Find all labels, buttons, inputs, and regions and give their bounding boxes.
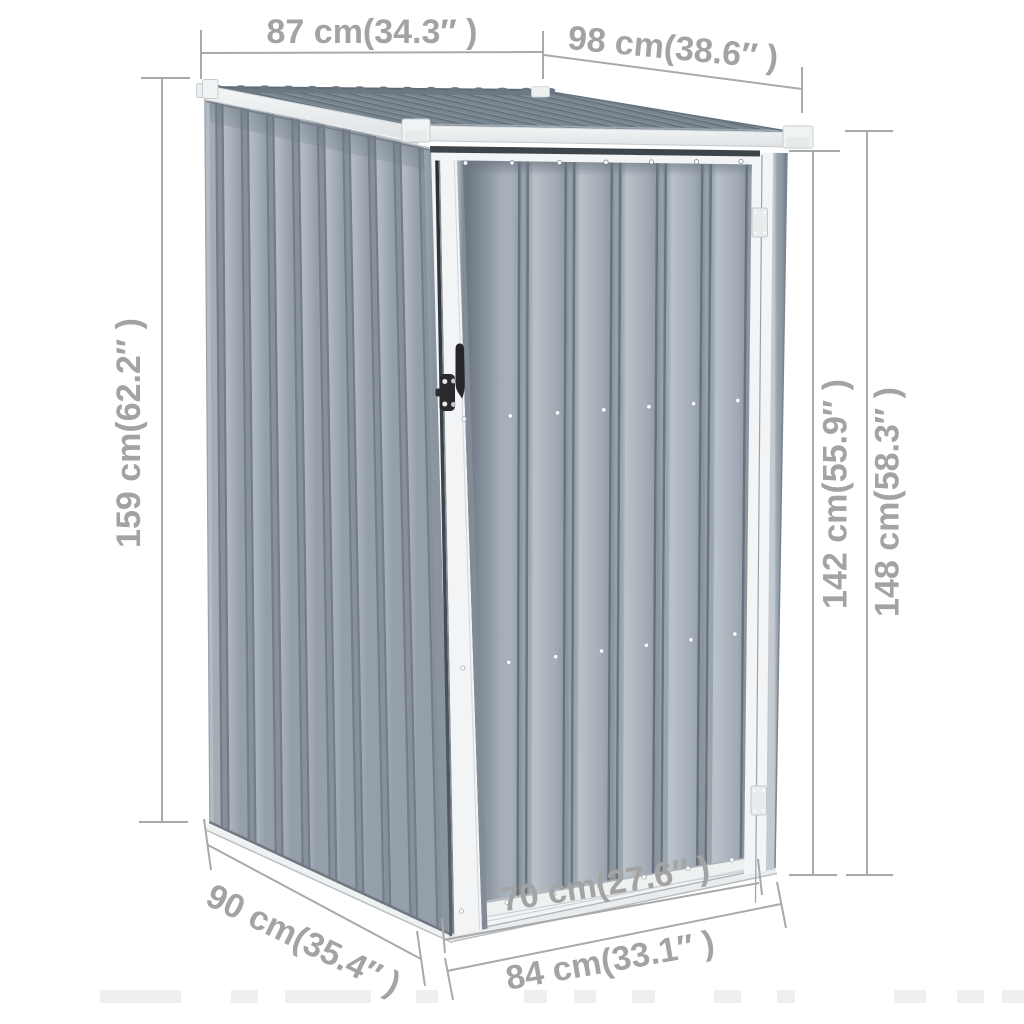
svg-text:87 cm(34.3″ ): 87 cm(34.3″ ) [267,13,478,51]
svg-text:142 cm(55.9″ ): 142 cm(55.9″ ) [817,379,855,609]
svg-text:148 cm(58.3″ ): 148 cm(58.3″ ) [869,387,907,617]
svg-text:159 cm(62.2″ ): 159 cm(62.2″ ) [110,318,148,548]
